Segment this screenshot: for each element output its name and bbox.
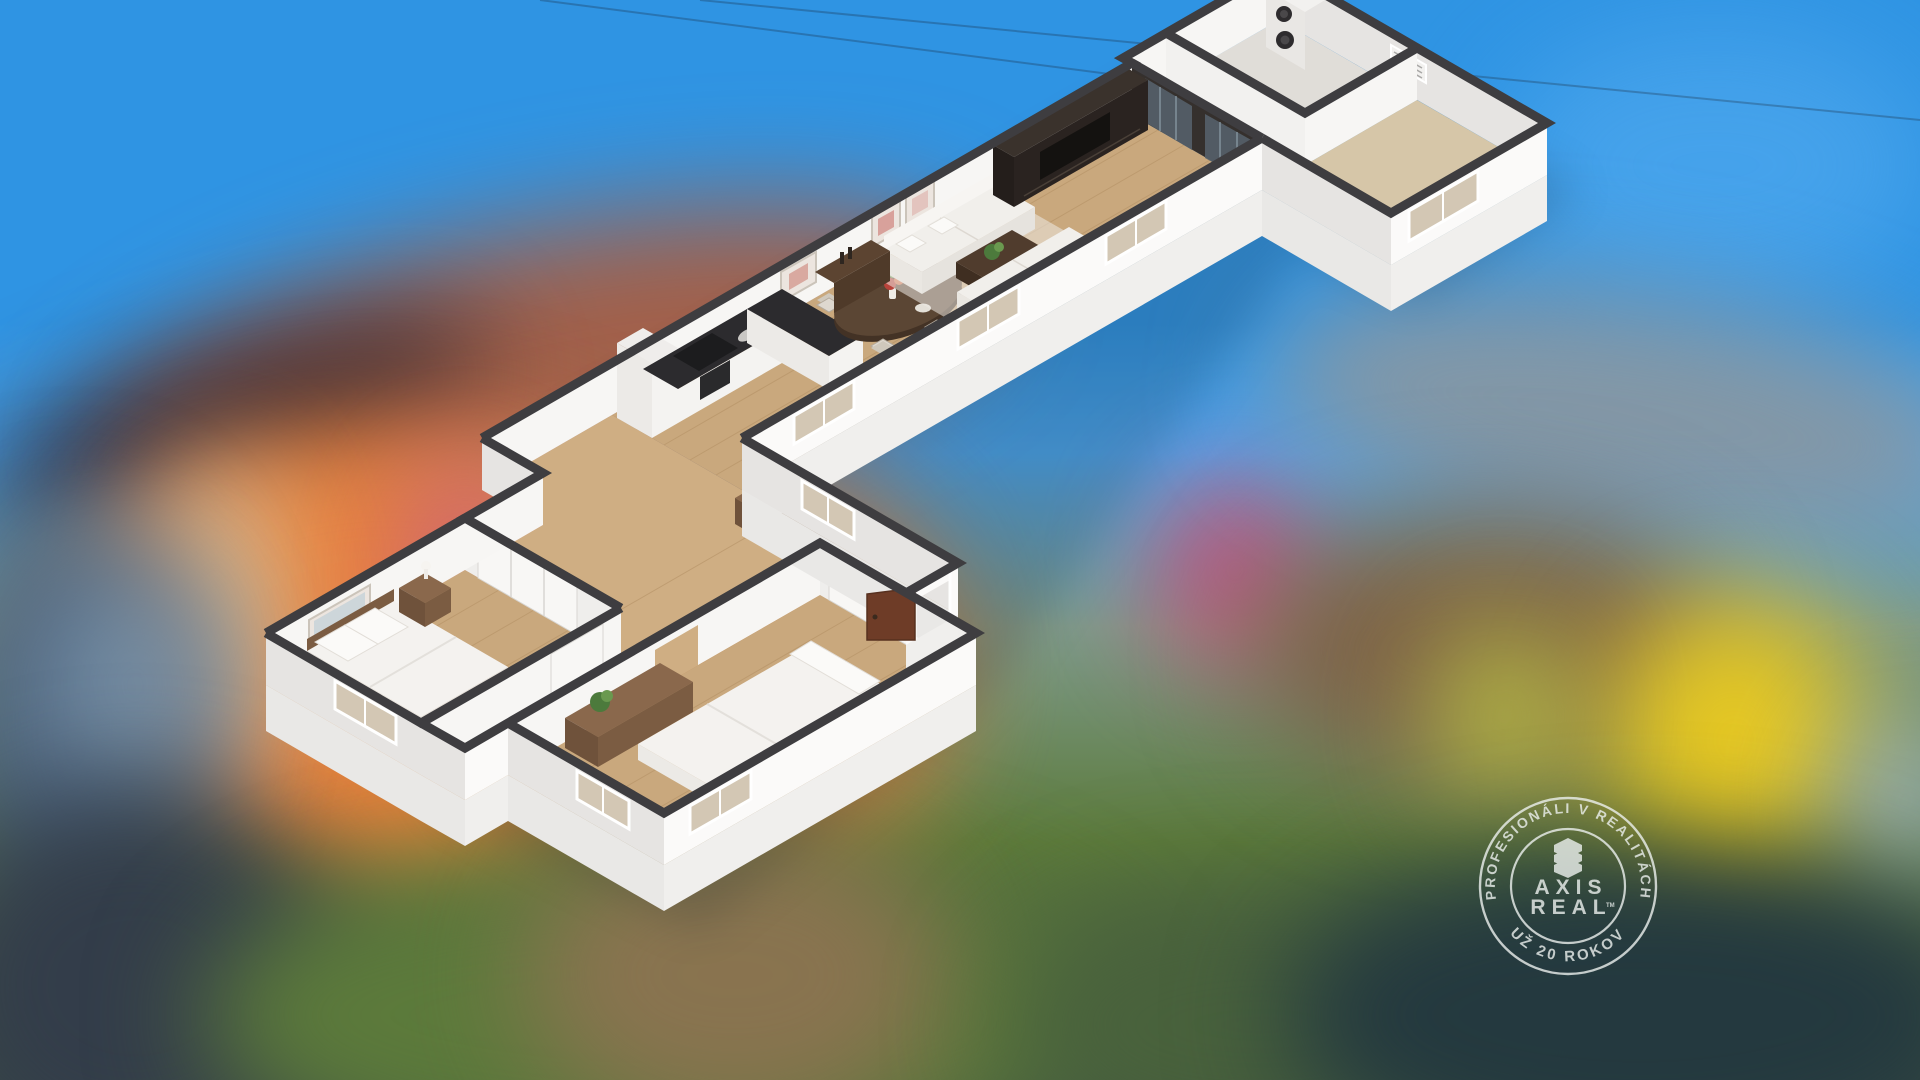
- badge-arc-bottom-text: UŽ 20 ROKOV: [1507, 924, 1630, 965]
- building-icon: [1554, 838, 1582, 878]
- axis-real-watermark-badge: PROFESIONÁLI V REALITÁCH UŽ 20 ROKOV AXI…: [1463, 781, 1673, 991]
- badge-trademark: TM: [1606, 903, 1615, 909]
- badge-brand-real: REAL: [1530, 896, 1611, 919]
- door-knob: [873, 615, 878, 620]
- real-estate-render: PROFESIONÁLI V REALITÁCH UŽ 20 ROKOV AXI…: [0, 0, 1920, 1080]
